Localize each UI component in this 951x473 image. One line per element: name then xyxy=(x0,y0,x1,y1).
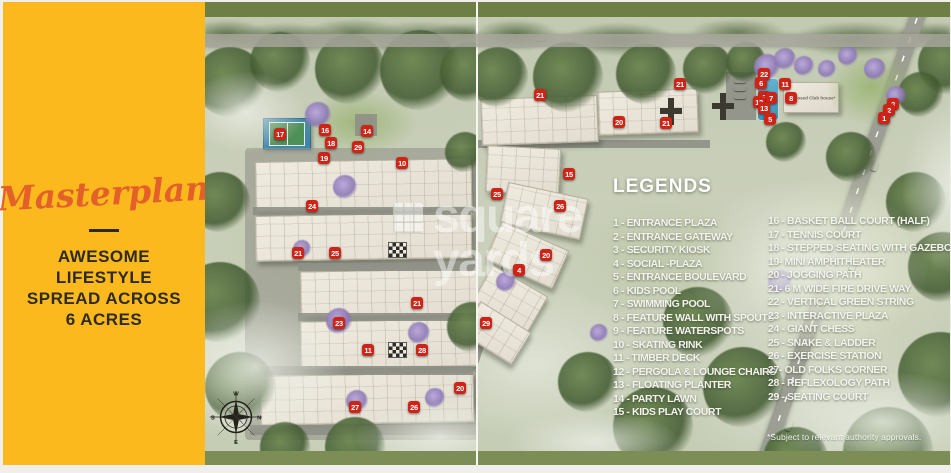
legend-item: 25 - SNAKE & LADDER xyxy=(768,337,950,351)
legend-item: 12 - PERGOLA & LOUNGE CHAIRS xyxy=(613,366,776,380)
map-marker-29: 29 xyxy=(480,317,492,329)
legend-item: 16 - BASKET BALL COURT (HALF) xyxy=(768,215,950,229)
legend-item: 9 - FEATURE WATERSPOTS xyxy=(613,325,776,339)
map-marker-6: 6 xyxy=(755,77,767,89)
legend-item: 5 - ENTRANCE BOULEVARD xyxy=(613,271,776,285)
map-marker-27: 27 xyxy=(349,401,361,413)
map-marker-11: 11 xyxy=(362,344,374,356)
legend-item: 14 - PARTY LAWN xyxy=(613,393,776,407)
map-marker-21: 21 xyxy=(411,297,423,309)
map-marker-4: 4 xyxy=(513,264,525,276)
map-marker-20: 20 xyxy=(540,249,552,261)
map-marker-17: 17 xyxy=(274,128,286,140)
map-marker-23: 23 xyxy=(333,317,345,329)
legend-item: 23 - INTERACTIVE PLAZA xyxy=(768,310,950,324)
legend-item: 18 - STEPPED SEATING WITH GAZEBO xyxy=(768,242,950,256)
map-marker-25: 25 xyxy=(329,247,341,259)
legend-item: 21- 6 M WIDE FIRE DRIVE WAY xyxy=(768,283,950,297)
legend-column-2: 16 - BASKET BALL COURT (HALF)17 - TENNIS… xyxy=(768,215,950,404)
tagline: AWESOMELIFESTYLESPREAD ACROSS6 ACRES xyxy=(27,246,181,330)
legend-title: LEGENDS xyxy=(613,176,712,198)
masterplan-sidebar: Masterplan AWESOMELIFESTYLESPREAD ACROSS… xyxy=(3,2,205,465)
legend-item: 13 - FLOATING PLANTER xyxy=(613,379,776,393)
map-marker-16: 16 xyxy=(319,124,331,136)
legend-item: 19- MINI AMPHITHEATER xyxy=(768,256,950,270)
svg-text:N: N xyxy=(257,415,261,421)
legend-item: 17 - TENNIS COURT xyxy=(768,229,950,243)
masterplan-script-title: Masterplan xyxy=(0,169,210,219)
map-marker-11: 11 xyxy=(779,78,791,90)
map-marker-5: 5 xyxy=(764,113,776,125)
legend-item: 7 - SWIMMING POOL xyxy=(613,298,776,312)
map-marker-20: 20 xyxy=(454,382,466,394)
legend-item: 26 - EXERCISE STATION xyxy=(768,350,950,364)
svg-text:S: S xyxy=(211,415,215,421)
map-marker-10: 10 xyxy=(396,157,408,169)
map-marker-21: 21 xyxy=(674,78,686,90)
legend-item: 2 - ENTRANCE GATEWAY xyxy=(613,231,776,245)
legend-item: 8 - FEATURE WALL WITH SPOUTS xyxy=(613,312,776,326)
map-marker-24: 24 xyxy=(306,200,318,212)
map-marker-21: 21 xyxy=(660,117,672,129)
map-marker-8: 8 xyxy=(785,92,797,104)
legend-item: 4 - SOCIAL -PLAZA xyxy=(613,258,776,272)
legend-item: 10 - SKATING RINK xyxy=(613,339,776,353)
map-marker-18: 18 xyxy=(325,137,337,149)
tagline-line: SPREAD ACROSS xyxy=(27,288,181,309)
legend-item: 11 - TIMBER DECK xyxy=(613,352,776,366)
legend-item: 1 - ENTRANCE PLAZA xyxy=(613,217,776,231)
masterplan-aerial-map: Proposed Club house* 1716141829191024212… xyxy=(205,2,950,465)
tagline-line: 6 ACRES xyxy=(27,309,181,330)
map-marker-29: 29 xyxy=(352,141,364,153)
map-marker-21: 21 xyxy=(534,89,546,101)
map-marker-26: 26 xyxy=(408,401,420,413)
map-marker-19: 19 xyxy=(318,152,330,164)
map-marker-14: 14 xyxy=(361,125,373,137)
compass-rose-icon: W N E S xyxy=(207,388,265,446)
legend-item: 27- OLD FOLKS CORNER xyxy=(768,364,950,378)
disclaimer-note: *Subject to relevant authority approvals… xyxy=(767,432,921,442)
map-marker-15: 15 xyxy=(563,168,575,180)
legend-item: 22 - VERTICAL GREEN STRING xyxy=(768,296,950,310)
legend-item: 15 - KIDS PLAY COURT xyxy=(613,406,776,420)
legend-column-1: 1 - ENTRANCE PLAZA2 - ENTRANCE GATEWAY3 … xyxy=(613,217,776,420)
legend-item: 6 - KIDS POOL xyxy=(613,285,776,299)
legend-item: 24 - GIANT CHESS xyxy=(768,323,950,337)
map-marker-26: 26 xyxy=(554,200,566,212)
svg-text:E: E xyxy=(234,440,238,446)
map-marker-28: 28 xyxy=(416,344,428,356)
legend-item: 3 - SECURITY KIOSK xyxy=(613,244,776,258)
map-marker-21: 21 xyxy=(292,247,304,259)
legend-item: 20 - JOGGING PATH xyxy=(768,269,950,283)
map-marker-25: 25 xyxy=(491,188,503,200)
map-marker-20: 20 xyxy=(613,116,625,128)
legend-item: 28 - REFLEXOLOGY PATH xyxy=(768,377,950,391)
tagline-line: AWESOME xyxy=(27,246,181,267)
divider-line xyxy=(89,229,119,232)
tagline-line: LIFESTYLE xyxy=(27,267,181,288)
svg-text:W: W xyxy=(233,392,239,398)
map-marker-1: 1 xyxy=(878,112,890,124)
legend-item: 29 - SEATING COURT xyxy=(768,391,950,405)
